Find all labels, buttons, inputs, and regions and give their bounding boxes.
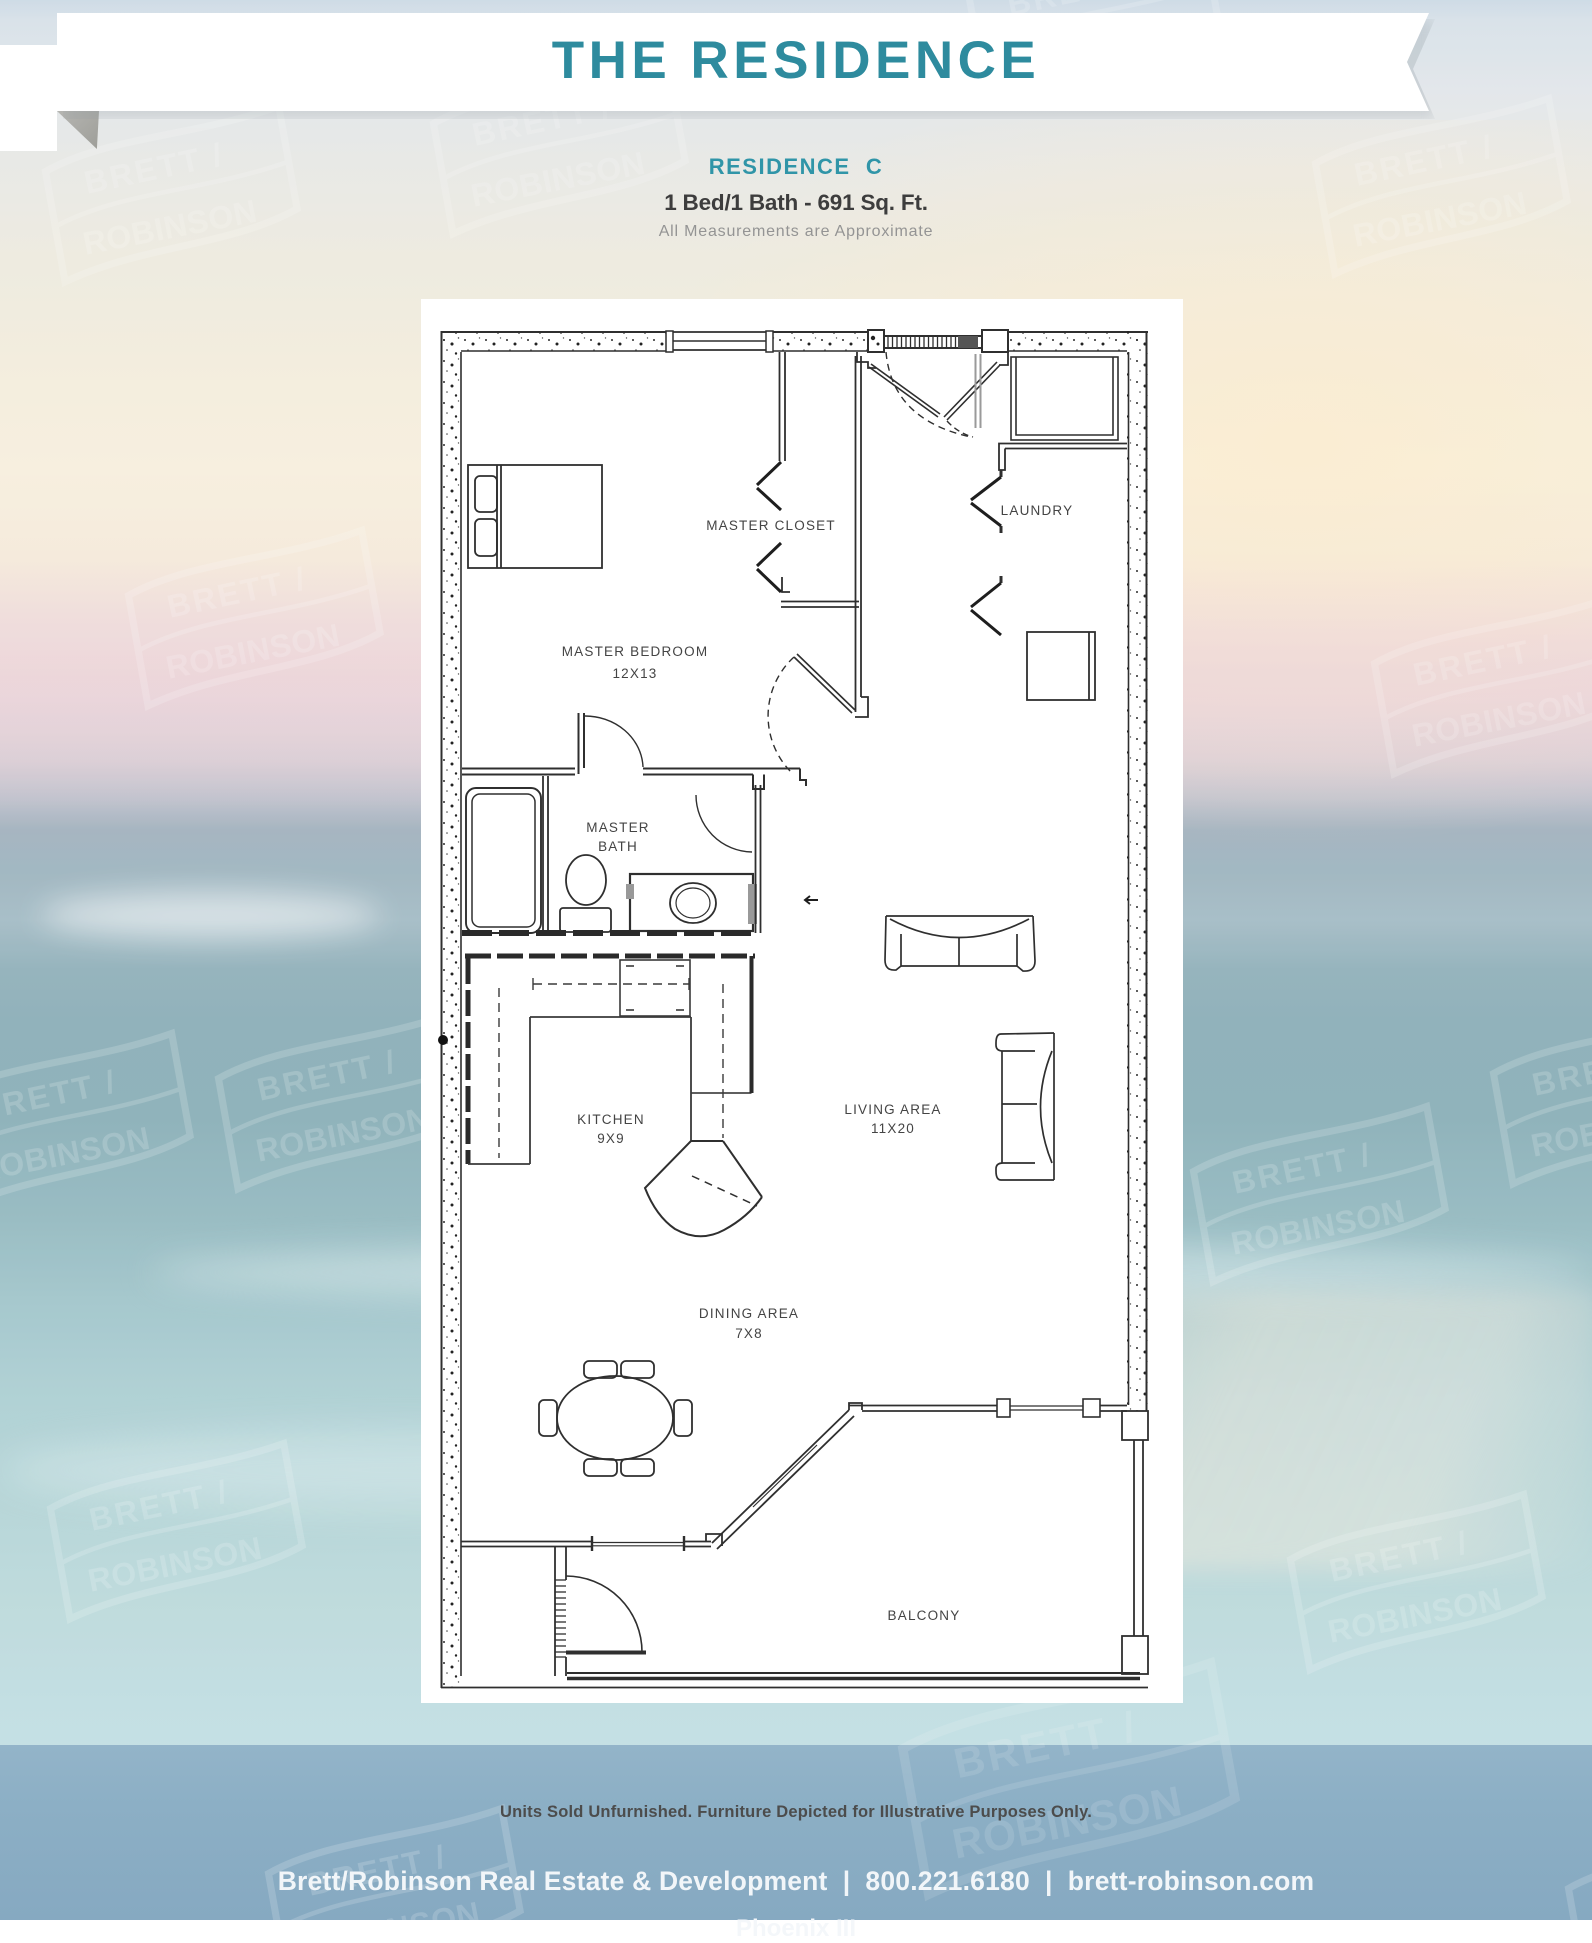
svg-text:BATH: BATH <box>598 839 638 854</box>
svg-text:11X20: 11X20 <box>871 1121 915 1136</box>
svg-text:MASTER: MASTER <box>586 820 649 835</box>
svg-text:9X9: 9X9 <box>597 1131 625 1146</box>
svg-text:7X8: 7X8 <box>735 1326 763 1341</box>
svg-text:12X13: 12X13 <box>612 666 657 681</box>
svg-text:KITCHEN: KITCHEN <box>577 1112 645 1127</box>
svg-text:MASTER CLOSET: MASTER CLOSET <box>706 518 836 533</box>
svg-text:BALCONY: BALCONY <box>888 1608 961 1623</box>
svg-text:LIVING AREA: LIVING AREA <box>844 1102 941 1117</box>
svg-text:DINING AREA: DINING AREA <box>699 1306 799 1321</box>
svg-text:MASTER BEDROOM: MASTER BEDROOM <box>562 644 709 659</box>
svg-text:LAUNDRY: LAUNDRY <box>1001 503 1074 518</box>
